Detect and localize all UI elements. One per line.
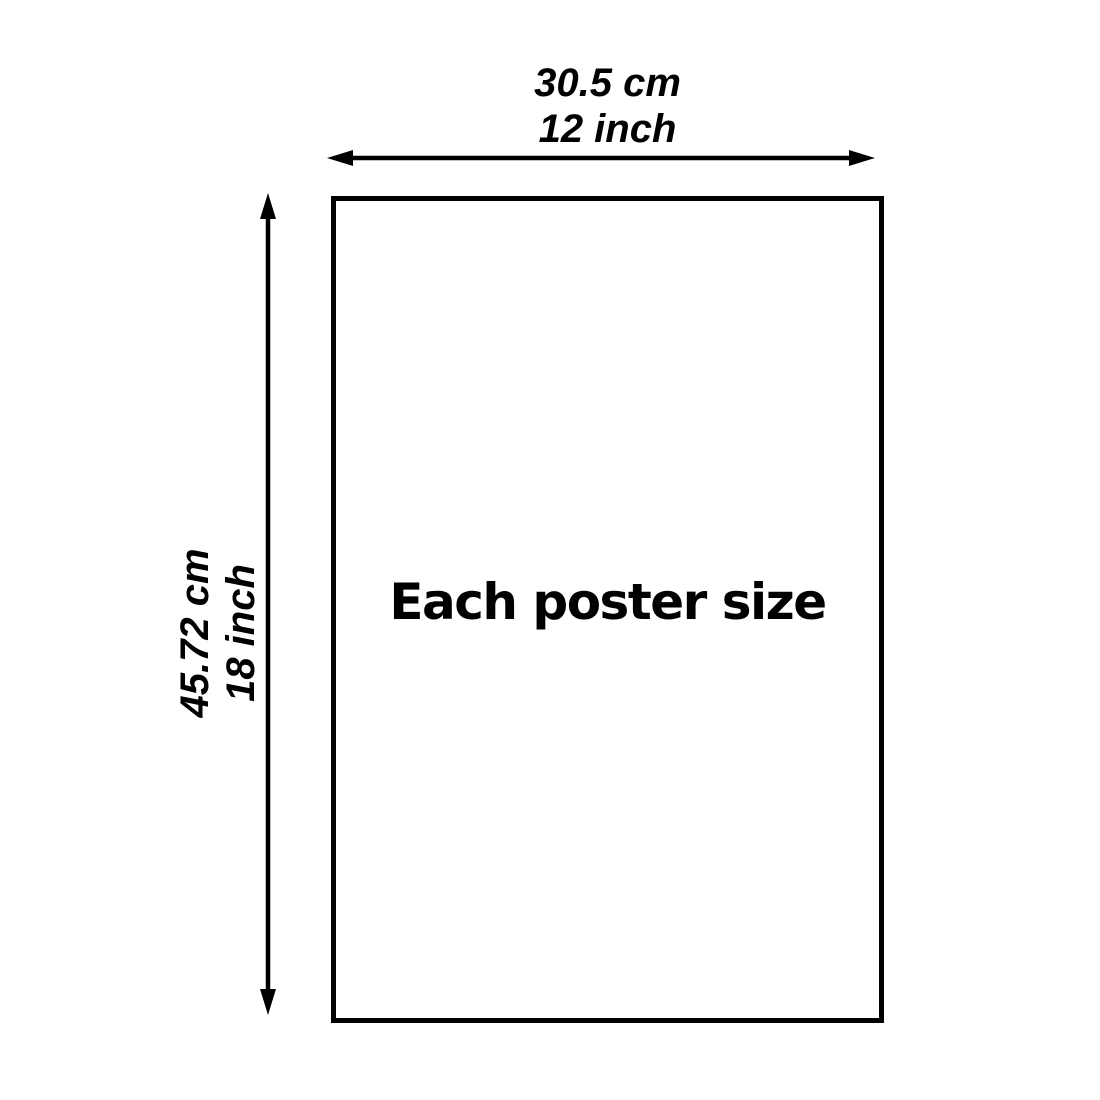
width-arrow-right-head-icon (849, 150, 875, 166)
height-cm-label: 45.72 cm (172, 483, 218, 783)
height-dimension-label: 45.72 cm 18 inch (172, 483, 268, 783)
width-dimension-arrow (325, 146, 877, 170)
poster-size-diagram: 30.5 cm 12 inch 45.72 cm 18 inch Each po… (0, 0, 1100, 1100)
height-arrow-top-head-icon (260, 193, 276, 219)
width-arrow-left-head-icon (327, 150, 353, 166)
width-cm-label: 30.5 cm (331, 60, 884, 106)
height-arrow-bottom-head-icon (260, 989, 276, 1015)
poster-size-caption: Each poster size (331, 570, 884, 634)
height-dimension-arrow (256, 191, 280, 1017)
width-dimension-label: 30.5 cm 12 inch (331, 60, 884, 152)
